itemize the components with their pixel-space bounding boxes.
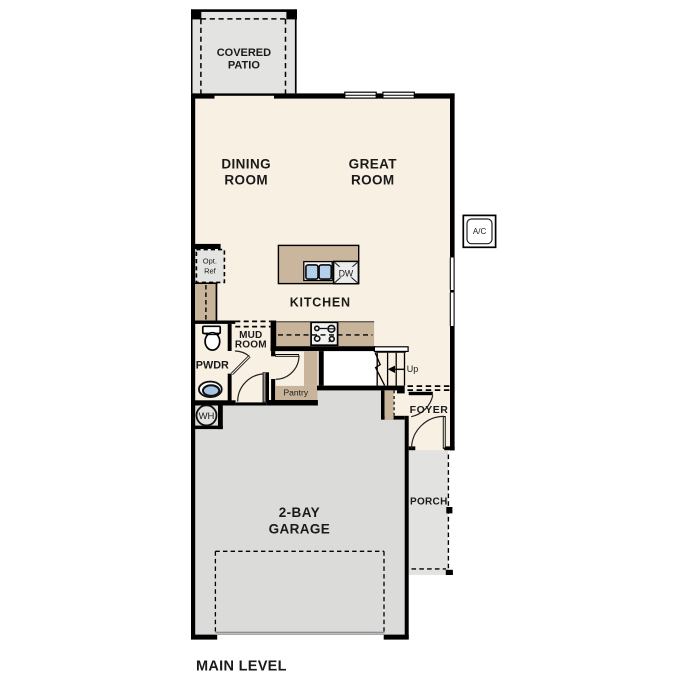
svg-text:WH: WH — [199, 411, 215, 422]
svg-text:Opt.: Opt. — [203, 257, 217, 266]
svg-text:PORCH: PORCH — [410, 497, 448, 508]
svg-text:GREAT: GREAT — [349, 157, 398, 172]
svg-text:ROOM: ROOM — [224, 172, 268, 187]
svg-text:Ref: Ref — [204, 266, 217, 275]
svg-text:2-BAY: 2-BAY — [279, 505, 320, 520]
svg-text:ROOM: ROOM — [351, 172, 395, 187]
svg-text:Pantry: Pantry — [284, 387, 309, 397]
svg-text:ROOM: ROOM — [235, 340, 267, 351]
svg-text:A/C: A/C — [473, 227, 487, 236]
svg-text:GARAGE: GARAGE — [269, 522, 331, 537]
svg-text:DINING: DINING — [221, 157, 271, 172]
svg-text:DW: DW — [339, 268, 354, 278]
svg-text:MAIN LEVEL: MAIN LEVEL — [196, 658, 287, 674]
svg-text:PATIO: PATIO — [228, 60, 260, 72]
svg-text:KITCHEN: KITCHEN — [290, 295, 351, 309]
svg-text:COVERED: COVERED — [217, 47, 271, 59]
svg-text:FOYER: FOYER — [410, 404, 449, 416]
svg-text:Up: Up — [407, 364, 419, 374]
svg-text:PWDR: PWDR — [196, 359, 229, 371]
